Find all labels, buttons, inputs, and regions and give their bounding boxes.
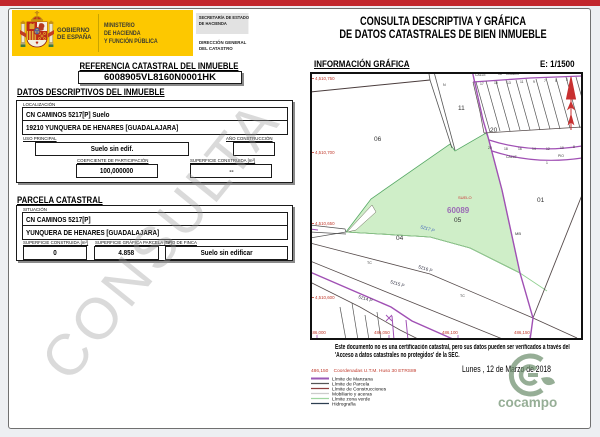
svg-text:10: 10	[560, 146, 564, 150]
svg-text:TC: TC	[367, 261, 372, 265]
svg-text:12: 12	[546, 147, 550, 151]
svg-text:05: 05	[454, 217, 462, 224]
svg-text:14: 14	[532, 147, 536, 151]
svg-text:17: 17	[480, 82, 484, 86]
svg-text:PIO: PIO	[558, 154, 564, 158]
svg-text:8: 8	[573, 145, 575, 149]
svg-text:486,150: 486,150	[514, 330, 530, 335]
svg-text:SUELO: SUELO	[458, 195, 472, 200]
svg-text:60089: 60089	[447, 206, 470, 215]
svg-text:15: 15	[494, 81, 498, 85]
svg-text:11: 11	[458, 105, 465, 112]
svg-text:N: N	[443, 83, 446, 87]
svg-text:486,050: 486,050	[374, 330, 390, 335]
svg-text:4,510,750: 4,510,750	[315, 76, 335, 81]
svg-text:18: 18	[504, 147, 508, 151]
svg-text:MB: MB	[515, 231, 521, 236]
svg-text:04: 04	[396, 235, 404, 242]
svg-text:01: 01	[537, 197, 545, 204]
svg-text:9: 9	[533, 80, 535, 84]
svg-text:Hidrografía: Hidrografía	[332, 401, 356, 407]
svg-text:3: 3	[566, 78, 568, 82]
svg-text:20: 20	[490, 127, 498, 134]
svg-text:TC: TC	[460, 294, 465, 298]
svg-text:06: 06	[374, 136, 382, 143]
svg-text:4,510,700: 4,510,700	[315, 150, 335, 155]
svg-text:13: 13	[507, 81, 511, 85]
svg-text:4,510,650: 4,510,650	[315, 221, 335, 226]
svg-text:4,510,600: 4,510,600	[315, 295, 335, 300]
svg-text:486,100: 486,100	[442, 330, 458, 335]
svg-text:5: 5	[555, 79, 557, 83]
svg-text:16: 16	[518, 147, 522, 151]
svg-text:11: 11	[520, 80, 524, 84]
svg-text:CALLE: CALLE	[506, 155, 517, 159]
svg-text:cocampo: cocampo	[498, 395, 557, 410]
svg-text:20: 20	[488, 146, 492, 150]
svg-text:486,000: 486,000	[310, 330, 326, 335]
svg-text:7: 7	[544, 79, 546, 83]
svg-text:1: 1	[546, 161, 548, 165]
